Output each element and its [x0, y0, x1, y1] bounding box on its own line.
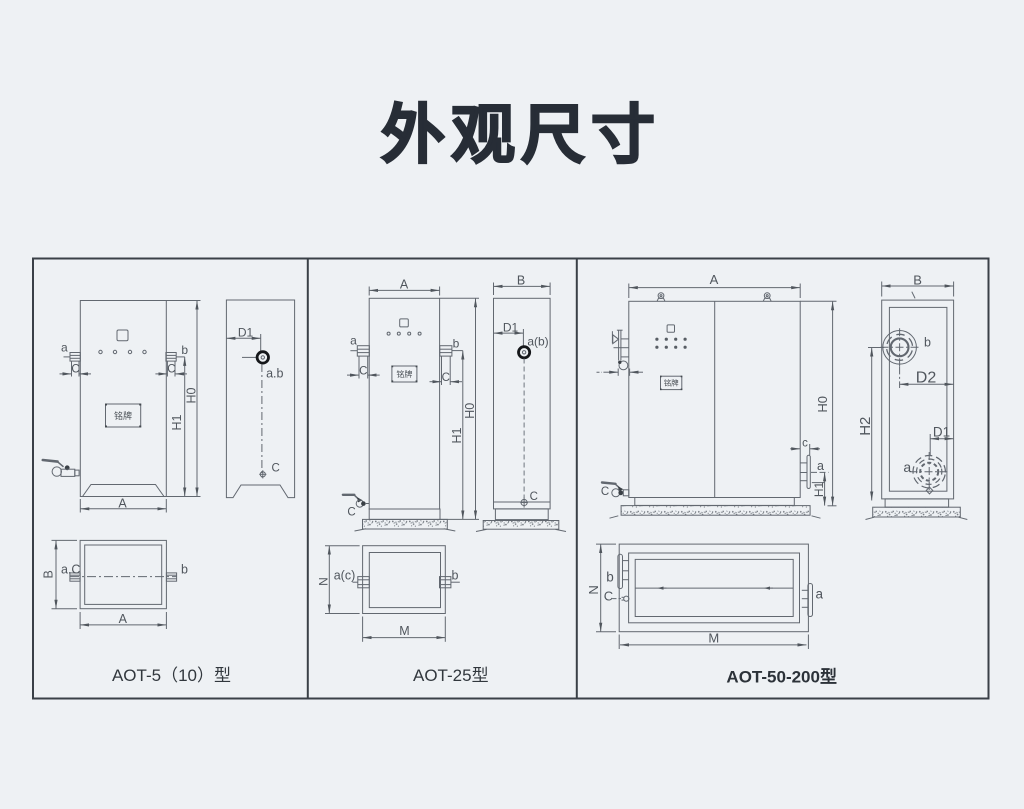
svg-text:C: C — [347, 507, 355, 519]
svg-text:C: C — [442, 372, 450, 384]
svg-text:A: A — [400, 277, 409, 291]
svg-text:b: b — [606, 570, 614, 585]
svg-text:b: b — [924, 336, 931, 350]
svg-text:a(b): a(b) — [527, 335, 548, 349]
svg-text:C: C — [272, 463, 280, 475]
svg-text:C: C — [604, 589, 613, 604]
svg-text:C: C — [530, 491, 538, 503]
svg-text:H0: H0 — [815, 396, 830, 413]
svg-text:a: a — [815, 587, 823, 602]
svg-text:B: B — [41, 570, 55, 578]
svg-text:c: c — [802, 438, 808, 450]
svg-text:a.b: a.b — [266, 367, 283, 381]
svg-text:A: A — [118, 496, 127, 510]
svg-text:D1: D1 — [503, 320, 519, 334]
svg-text:AOT-25型: AOT-25型 — [413, 666, 489, 685]
svg-text:外观尺寸: 外观尺寸 — [381, 99, 661, 171]
svg-text:H0: H0 — [463, 403, 477, 419]
svg-text:H2: H2 — [857, 417, 874, 436]
svg-text:a: a — [903, 459, 911, 475]
svg-text:b: b — [453, 337, 460, 351]
svg-text:AOT-50-200型: AOT-50-200型 — [726, 667, 837, 687]
svg-text:N: N — [316, 577, 330, 586]
svg-text:H0: H0 — [184, 387, 198, 403]
svg-text:b: b — [452, 568, 459, 582]
svg-text:C: C — [167, 363, 175, 375]
svg-text:a.C: a.C — [61, 563, 80, 577]
svg-text:M: M — [399, 624, 409, 638]
svg-text:C: C — [601, 486, 609, 498]
svg-text:D2: D2 — [916, 369, 937, 386]
svg-text:H1: H1 — [450, 427, 464, 443]
svg-text:b: b — [181, 563, 188, 577]
svg-text:a: a — [817, 459, 824, 473]
svg-text:a: a — [350, 334, 357, 348]
svg-text:D1: D1 — [238, 325, 254, 339]
svg-text:B: B — [913, 272, 922, 287]
svg-text:铭牌: 铭牌 — [664, 378, 679, 388]
svg-text:C: C — [359, 366, 367, 378]
svg-text:B: B — [517, 274, 525, 288]
svg-text:A: A — [119, 612, 128, 626]
svg-text:铭牌: 铭牌 — [396, 369, 412, 379]
svg-text:a: a — [61, 341, 68, 355]
svg-text:a(c): a(c) — [334, 569, 356, 583]
svg-text:M: M — [708, 631, 719, 646]
svg-text:D1: D1 — [933, 425, 950, 440]
svg-text:N: N — [586, 585, 601, 594]
svg-text:C: C — [71, 363, 79, 375]
svg-text:A: A — [710, 272, 719, 287]
svg-text:H1: H1 — [170, 414, 184, 430]
svg-text:H1: H1 — [812, 482, 826, 498]
svg-text:AOT-5（10）型: AOT-5（10）型 — [112, 666, 231, 685]
svg-text:b: b — [181, 343, 188, 357]
svg-text:铭牌: 铭牌 — [114, 410, 132, 421]
